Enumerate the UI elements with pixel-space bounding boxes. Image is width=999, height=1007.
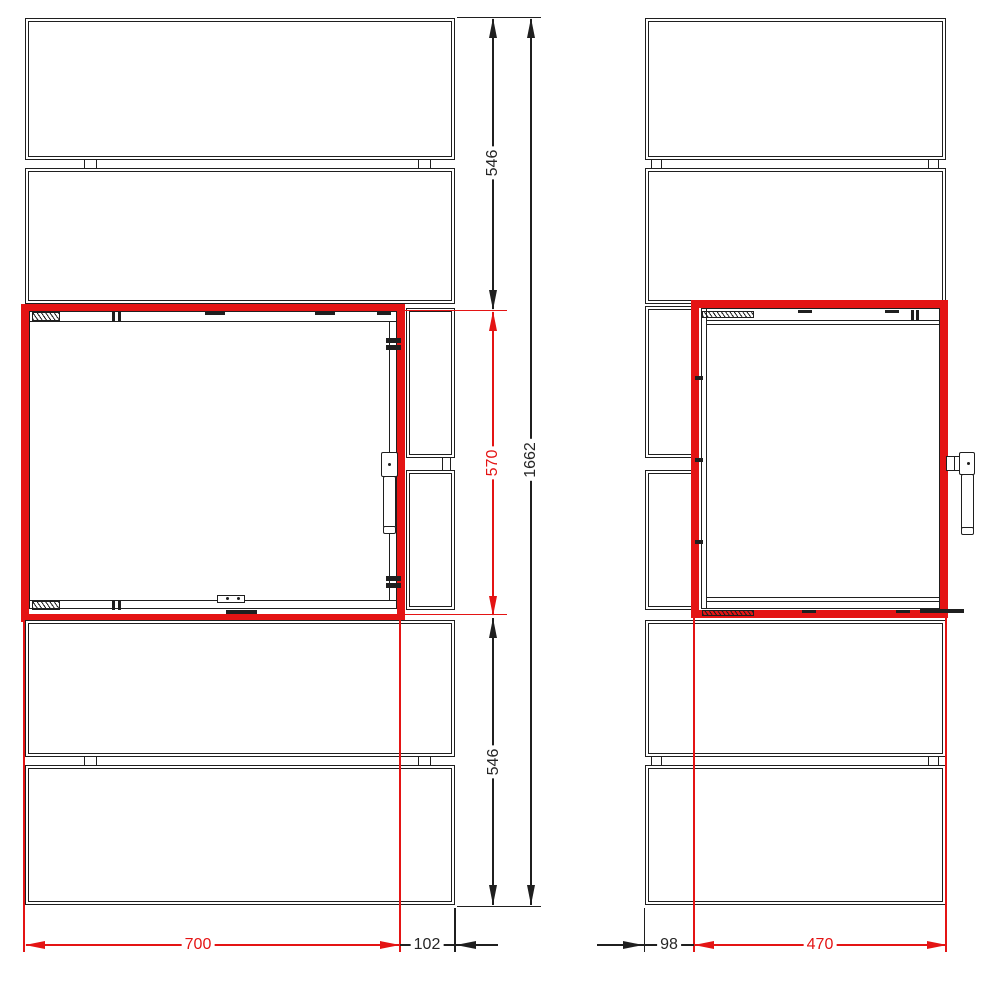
- panel-joint-tab: [84, 756, 97, 766]
- door-top-seal-dash: [205, 312, 225, 315]
- hinge-tick: [112, 312, 115, 321]
- door-bottom-vent-dash: [226, 610, 257, 614]
- front-upper-panel: [25, 168, 455, 304]
- side-bottom-panel: [645, 765, 946, 905]
- arrowhead: [489, 290, 497, 310]
- front-right-strip-lower: [406, 470, 455, 610]
- side-door-top-rail: [707, 324, 940, 325]
- ext-bottom: [457, 906, 541, 907]
- dim-label-right-offset: 102: [411, 936, 444, 954]
- hinge-tick: [112, 601, 115, 610]
- handle-screw: [388, 463, 391, 466]
- latch-screw: [237, 597, 240, 600]
- door-bottom-seal-dash: [802, 610, 816, 613]
- panel-joint-tab: [418, 756, 431, 766]
- side-door-top-rail: [707, 320, 940, 321]
- strip-joint-tab: [442, 457, 451, 471]
- front-right-strip-upper: [406, 308, 455, 458]
- arrowhead: [489, 18, 497, 38]
- side-door-leaf: [701, 308, 940, 609]
- arrowhead: [380, 941, 400, 949]
- dim-label-door-height: 570: [484, 447, 502, 480]
- door-glass-frame-bottom: [30, 600, 396, 601]
- hinge-tick: [916, 310, 919, 320]
- door-latch: [217, 595, 245, 603]
- door-handle-bar: [383, 476, 396, 528]
- door-hinge-bottom: [386, 576, 401, 581]
- dim-label-door-width: 700: [182, 936, 215, 954]
- dim-label-door-depth: 470: [804, 936, 837, 954]
- arrowhead: [25, 941, 45, 949]
- front-top-panel: [25, 18, 455, 160]
- front-door-leaf: [29, 311, 397, 609]
- side-upper-panel: [645, 168, 946, 304]
- panel-joint-tab: [928, 159, 939, 169]
- ext-door-left: [23, 616, 24, 952]
- dim-label-lower-section-height: 546: [485, 746, 503, 779]
- door-frame-tick: [695, 540, 703, 544]
- door-hinge-top: [386, 338, 401, 343]
- dim-label-total-height: 1662: [522, 439, 540, 481]
- panel-joint-tab: [84, 159, 97, 169]
- hinge-tick: [118, 312, 121, 321]
- panel-joint-tab: [928, 756, 939, 766]
- side-rear-strip-lower: [645, 470, 695, 610]
- arrowhead: [527, 885, 535, 905]
- door-top-seal-dash: [798, 310, 812, 313]
- door-hinge-plate-bottom-left: [32, 601, 60, 610]
- dim-label-rear-offset: 98: [657, 936, 681, 954]
- side-door-bottom-rail: [707, 597, 940, 598]
- panel-joint-tab: [418, 159, 431, 169]
- door-hinge-plate-top-left: [32, 312, 60, 321]
- dim-label-upper-section-height: 546: [484, 147, 502, 180]
- front-bottom-panel: [25, 765, 455, 905]
- side-top-panel: [645, 18, 946, 160]
- ext-side-door-right: [945, 616, 946, 952]
- side-handle-cap: [961, 527, 974, 535]
- door-bottom-seal-dash: [896, 610, 910, 613]
- handle-screw: [967, 462, 970, 465]
- panel-joint-tab: [651, 756, 662, 766]
- side-lower-panel: [645, 620, 946, 757]
- door-handle-cap: [383, 526, 396, 534]
- latch-screw: [226, 597, 229, 600]
- arrowhead: [927, 941, 947, 949]
- technical-drawing-canvas: 546 570 546 1662 700 102 98 470: [0, 0, 999, 1007]
- door-top-seal-dash: [315, 312, 335, 315]
- side-door-front-face: [706, 308, 707, 609]
- hinge-tick: [911, 310, 914, 320]
- arrowhead: [489, 311, 497, 331]
- arrowhead: [489, 596, 497, 616]
- arrowhead: [489, 885, 497, 905]
- ext-door-right: [399, 616, 400, 952]
- side-door-hinge-plate-bottom: [702, 610, 754, 616]
- front-lower-panel: [25, 620, 455, 757]
- side-handle-bar: [961, 474, 974, 530]
- door-hinge-top: [386, 345, 401, 350]
- arrowhead: [527, 18, 535, 38]
- door-top-seal-dash: [377, 312, 391, 315]
- side-rear-strip-upper: [645, 306, 695, 458]
- door-glass-frame-top: [30, 321, 396, 322]
- side-door-bottom-rail: [707, 601, 940, 602]
- arrowhead: [623, 941, 643, 949]
- hinge-tick: [118, 601, 121, 610]
- door-bottom-lip: [920, 609, 964, 613]
- side-door-hinge-plate-top: [702, 311, 754, 318]
- arrowhead: [694, 941, 714, 949]
- door-top-seal-dash: [885, 310, 899, 313]
- arrowhead: [456, 941, 476, 949]
- door-frame-tick: [695, 376, 703, 380]
- door-hinge-bottom: [386, 583, 401, 588]
- handle-pin-divider: [954, 457, 955, 470]
- arrowhead: [489, 618, 497, 638]
- ext-side-door-left: [693, 616, 694, 952]
- panel-joint-tab: [651, 159, 662, 169]
- door-frame-tick: [695, 458, 703, 462]
